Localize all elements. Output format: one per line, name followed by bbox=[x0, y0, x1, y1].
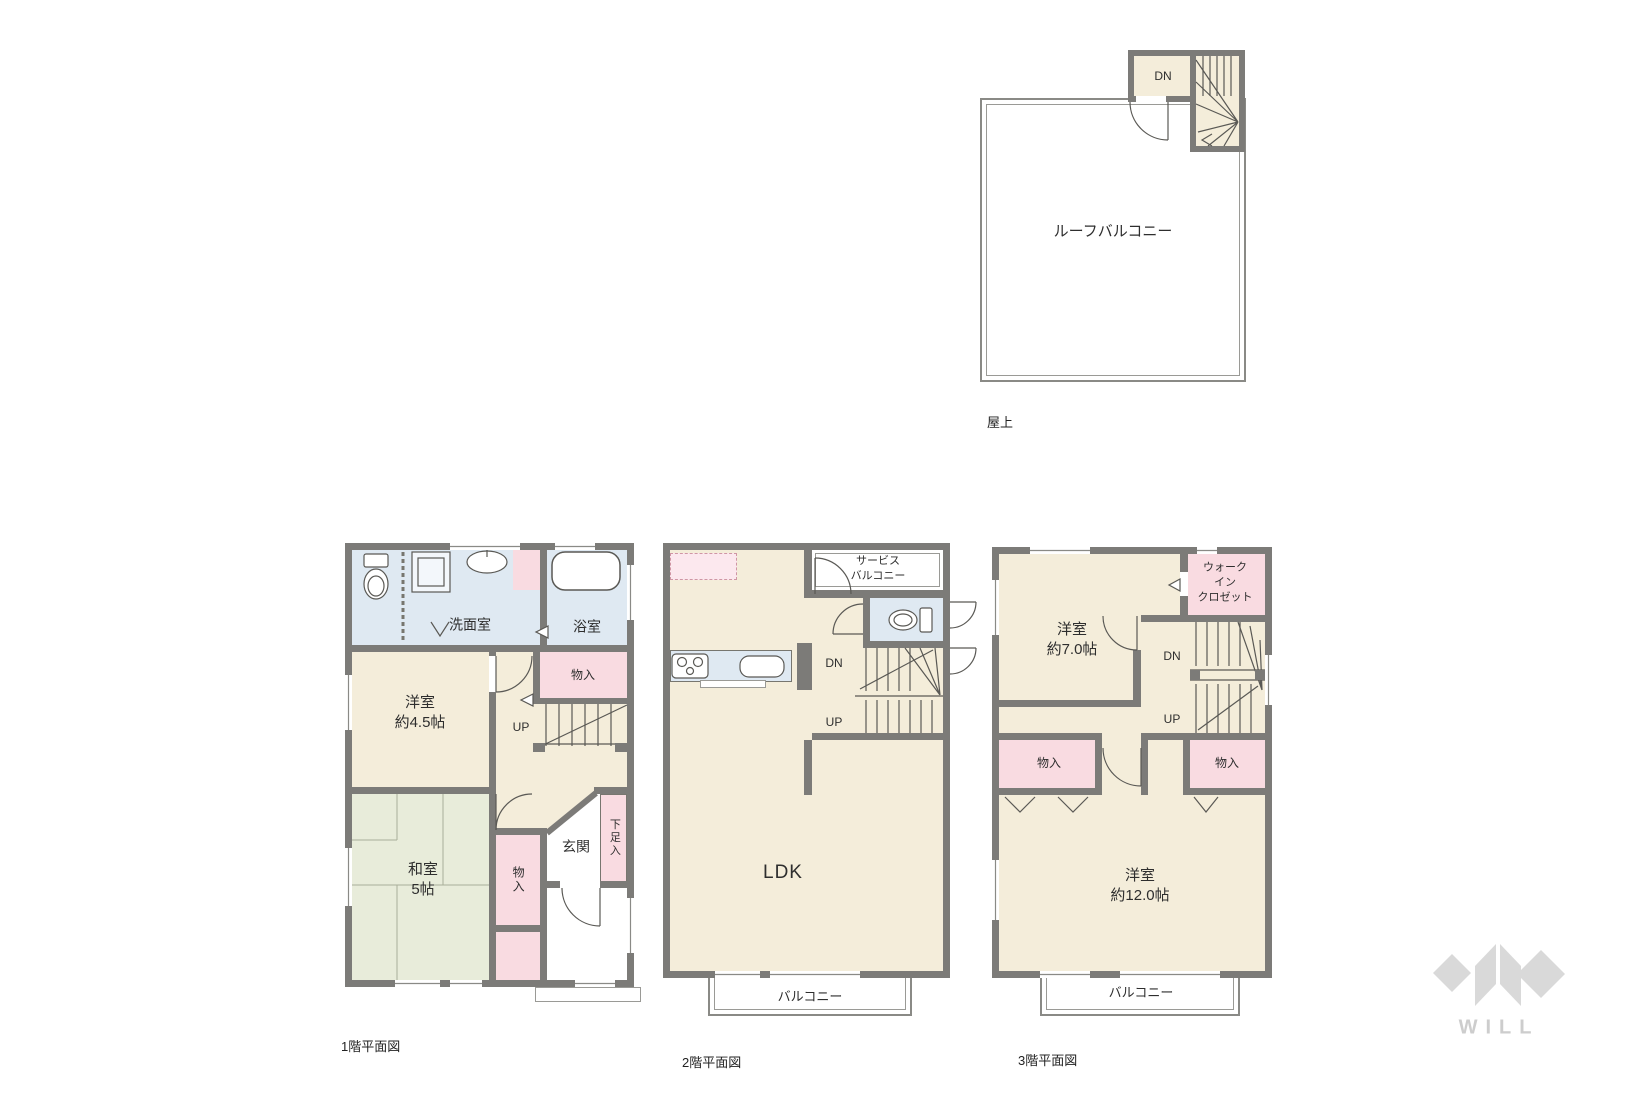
roof-stair-door-opening bbox=[1136, 96, 1166, 104]
floor1-caption: 1階平面図 bbox=[341, 1036, 400, 1055]
floor3-wall-storage-right-bottom bbox=[1183, 788, 1265, 795]
floor2-casement-windows bbox=[950, 602, 976, 674]
will-logo-mark bbox=[1433, 944, 1565, 1006]
floor3-wall-storage-left-right bbox=[1095, 740, 1102, 788]
floor3-storage-right-label: 物入 bbox=[1215, 755, 1239, 771]
floor2-wall-toilet-left bbox=[863, 598, 870, 641]
floor3-wall-hall-vertical bbox=[1133, 650, 1141, 707]
floor2-ldk-label: LDK bbox=[763, 860, 803, 886]
floor1-water-heater-box bbox=[513, 550, 540, 590]
floor1-toilet-room bbox=[352, 550, 400, 645]
floor1-bathroom-label: 浴室 bbox=[573, 618, 601, 637]
floor1-stairs bbox=[533, 704, 627, 754]
floor1-storage-lower bbox=[496, 932, 540, 980]
floor1-up-label: UP bbox=[513, 719, 530, 735]
floor1-wall-porch-left bbox=[540, 828, 547, 980]
floor1-wall-storage-left bbox=[533, 652, 540, 698]
floor3-wall-western7-bottom bbox=[999, 700, 1141, 707]
floor2-wall-toilet-bottom bbox=[863, 641, 943, 648]
floor1-washroom-label: 洗面室 bbox=[449, 616, 491, 635]
floor1-storage-hall-label: 物入 bbox=[510, 866, 526, 894]
roof-caption: 屋上 bbox=[987, 412, 1013, 431]
floor1-wall-japanese-right bbox=[489, 794, 496, 980]
floor1-japanese-room-label: 和室 5帖 bbox=[408, 860, 438, 901]
floor3-wall-stairs-bottom bbox=[1141, 733, 1265, 740]
floor1-storage-upper-label: 物入 bbox=[571, 667, 595, 683]
floor3-walk-in-closet-label: ウォーク イン クロゼット bbox=[1198, 561, 1253, 606]
floor2-up-label: UP bbox=[826, 714, 843, 730]
floor1-wall-storage-mid-top bbox=[496, 828, 540, 835]
floorplan-page: { "colors": { "wall": "#7c7b78", "floor_… bbox=[0, 0, 1639, 1093]
floor3-wall-under-closet bbox=[1141, 615, 1265, 622]
floor1-western-room-label: 洋室 約4.5帖 bbox=[395, 693, 446, 734]
floor3-up-label: UP bbox=[1164, 711, 1181, 727]
floor3-storage-left-label: 物入 bbox=[1037, 755, 1061, 771]
floor1-entrance-label: 玄関 bbox=[562, 838, 590, 857]
floor3-wall-storage-left-bottom bbox=[999, 788, 1102, 795]
roof-balcony-label: ルーフバルコニー bbox=[1054, 222, 1173, 242]
floor2-balcony-label: バルコニー bbox=[778, 988, 843, 1006]
floor1-western-door-gap bbox=[489, 656, 496, 692]
floor1-wall-japanese-top bbox=[352, 787, 496, 794]
floor3-western-room12-label: 洋室 約12.0帖 bbox=[1110, 866, 1169, 907]
floor2-caption: 2階平面図 bbox=[682, 1052, 741, 1071]
floor1-entry-step bbox=[535, 987, 641, 1002]
floor3-balcony-label: バルコニー bbox=[1109, 984, 1174, 1002]
floor2-wall-hanging bbox=[804, 740, 812, 795]
floor3-stairs bbox=[1190, 622, 1265, 733]
floor2-counter-recess bbox=[700, 680, 766, 688]
floor3-wall-closet-left bbox=[1180, 554, 1188, 615]
floor2-toilet-room bbox=[870, 598, 943, 641]
floor2-wall-service-balcony-bottom bbox=[804, 590, 943, 598]
floor2-wall-counter-stub bbox=[797, 643, 812, 690]
floor2-dn-label: DN bbox=[825, 655, 842, 671]
floor1-entrance-door-gap bbox=[560, 881, 600, 888]
will-logo-text: WILL bbox=[1459, 1017, 1540, 1040]
roof-stair-treads-area bbox=[1196, 56, 1239, 146]
floor3-western-room7-label: 洋室 約7.0帖 bbox=[1047, 620, 1098, 661]
floor3-caption: 3階平面図 bbox=[1018, 1050, 1077, 1069]
floor1-wall-washroom-bath bbox=[540, 550, 547, 645]
floor2-refrigerator-space bbox=[670, 553, 737, 580]
floor1-wall-entrance-top bbox=[594, 787, 627, 794]
floor1-shoe-storage-label: 下足入 bbox=[607, 819, 622, 858]
floor2-wall-stairs-bottom bbox=[812, 733, 943, 740]
floor1-wall-row1 bbox=[352, 645, 627, 652]
floor2-service-balcony-label: サービス バルコニー bbox=[851, 554, 906, 584]
floor3-dn-label: DN bbox=[1163, 648, 1180, 664]
roof-stairs-dn-label: DN bbox=[1154, 68, 1171, 84]
floor3-wall-storage-left-top bbox=[999, 733, 1102, 740]
floor1-wall-storage-mid-bottom bbox=[496, 925, 540, 932]
floor3-wall-storage-right-left bbox=[1183, 740, 1190, 788]
floor1-porch bbox=[547, 888, 627, 980]
floor2-kitchen-counter bbox=[670, 650, 792, 682]
